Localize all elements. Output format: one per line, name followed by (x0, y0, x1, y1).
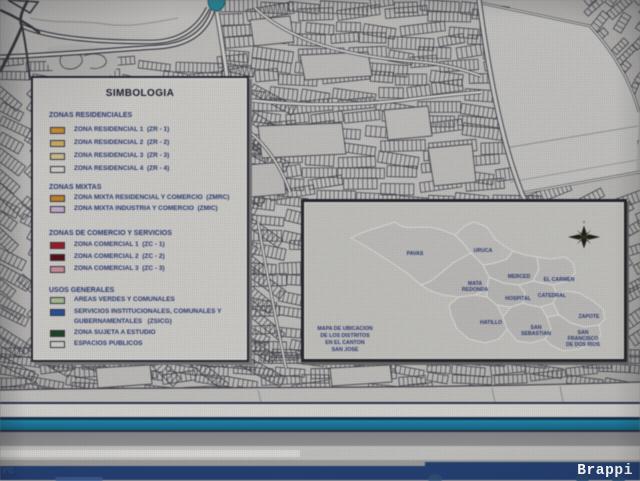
svg-text:ZAPOTE: ZAPOTE (578, 314, 600, 320)
svg-text:DE DOS RIOS: DE DOS RIOS (566, 342, 601, 348)
svg-text:PAVAS: PAVAS (407, 251, 424, 257)
svg-text:HOSPITAL: HOSPITAL (505, 296, 532, 302)
svg-text:MERCED: MERCED (508, 274, 531, 280)
svg-text:REDONDA: REDONDA (462, 287, 488, 293)
svg-text:EL CARMEN: EL CARMEN (544, 277, 575, 283)
svg-text:HATILLO: HATILLO (480, 320, 502, 326)
svg-text:SEBASTIAN: SEBASTIAN (521, 331, 551, 337)
svg-text:URUCA: URUCA (474, 248, 493, 254)
svg-text:CATEDRAL: CATEDRAL (538, 293, 567, 299)
